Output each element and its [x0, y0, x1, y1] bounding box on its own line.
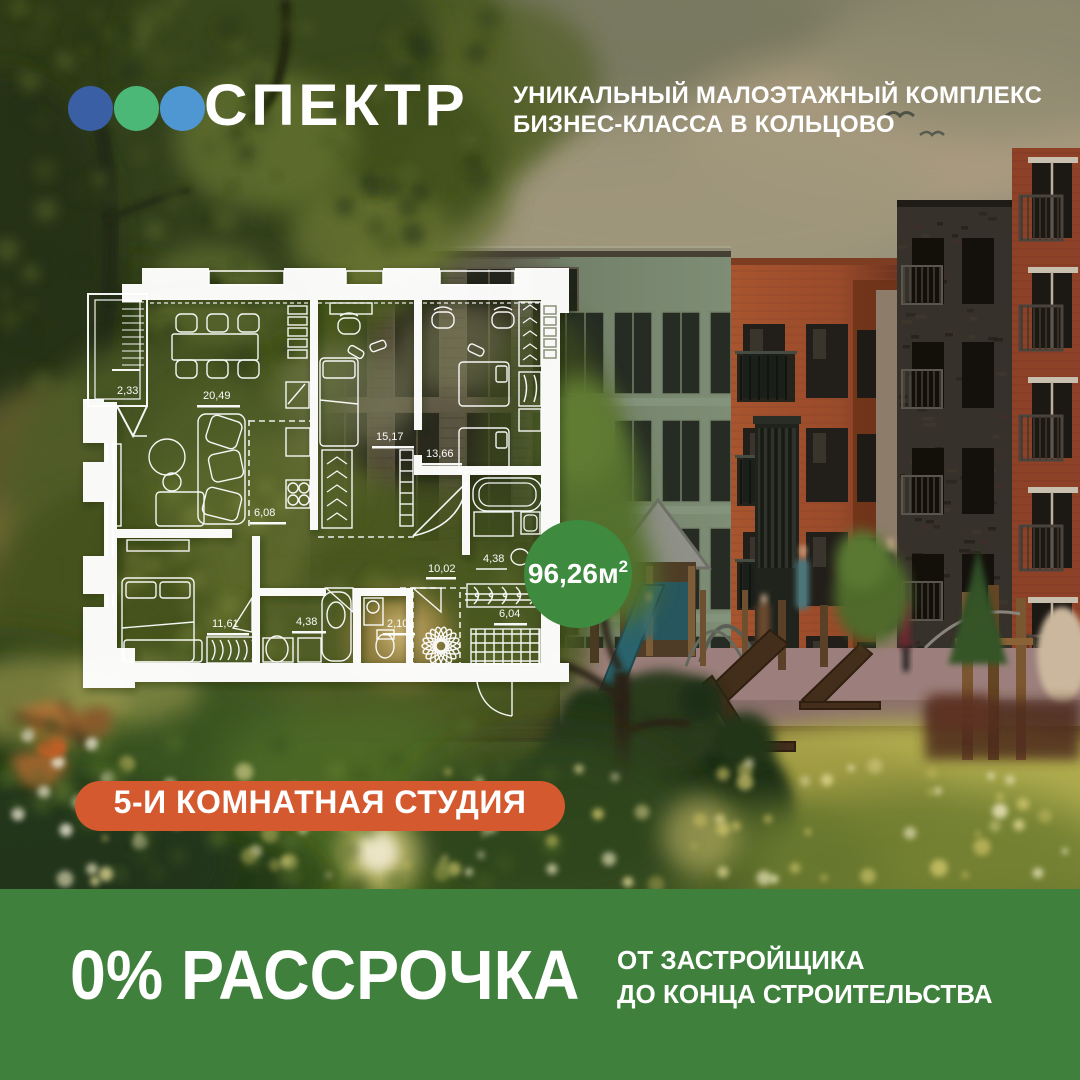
svg-text:11,61: 11,61 [212, 618, 239, 630]
svg-text:2,33: 2,33 [117, 385, 138, 397]
svg-text:15,17: 15,17 [376, 431, 404, 443]
svg-text:6,08: 6,08 [254, 507, 275, 519]
svg-text:4,38: 4,38 [296, 616, 317, 628]
svg-text:13,66: 13,66 [426, 448, 454, 460]
svg-text:20,49: 20,49 [203, 390, 231, 402]
svg-text:10,02: 10,02 [428, 563, 456, 575]
svg-text:4,38: 4,38 [483, 553, 504, 565]
svg-text:2,10: 2,10 [387, 618, 408, 630]
svg-text:6,04: 6,04 [499, 608, 520, 620]
